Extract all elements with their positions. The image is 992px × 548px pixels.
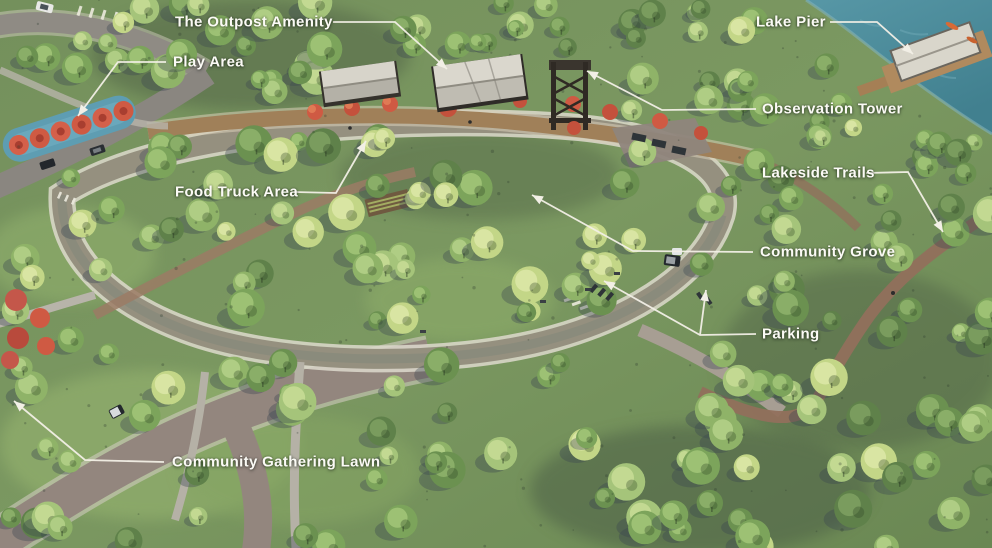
golf-cart-icon bbox=[664, 254, 681, 267]
rendering-canvas bbox=[0, 0, 992, 548]
callout-community-grove: Community Grove bbox=[760, 244, 895, 261]
callout-parking: Parking bbox=[762, 326, 819, 343]
callout-observation-tower: Observation Tower bbox=[762, 101, 903, 118]
pedestrian bbox=[348, 126, 352, 130]
pedestrian bbox=[891, 291, 895, 295]
callout-the-outpost-amenity: The Outpost Amenity bbox=[175, 14, 333, 31]
callout-lake-pier: Lake Pier bbox=[756, 14, 826, 31]
callout-lakeside-trails: Lakeside Trails bbox=[762, 165, 875, 182]
pedestrian bbox=[468, 120, 472, 124]
callout-food-truck-area: Food Truck Area bbox=[175, 184, 298, 201]
callout-play-area: Play Area bbox=[173, 54, 244, 71]
callout-community-gathering-lawn: Community Gathering Lawn bbox=[172, 454, 380, 471]
park-masterplan-rendering: The Outpost Amenity Play Area Lake Pier … bbox=[0, 0, 992, 548]
